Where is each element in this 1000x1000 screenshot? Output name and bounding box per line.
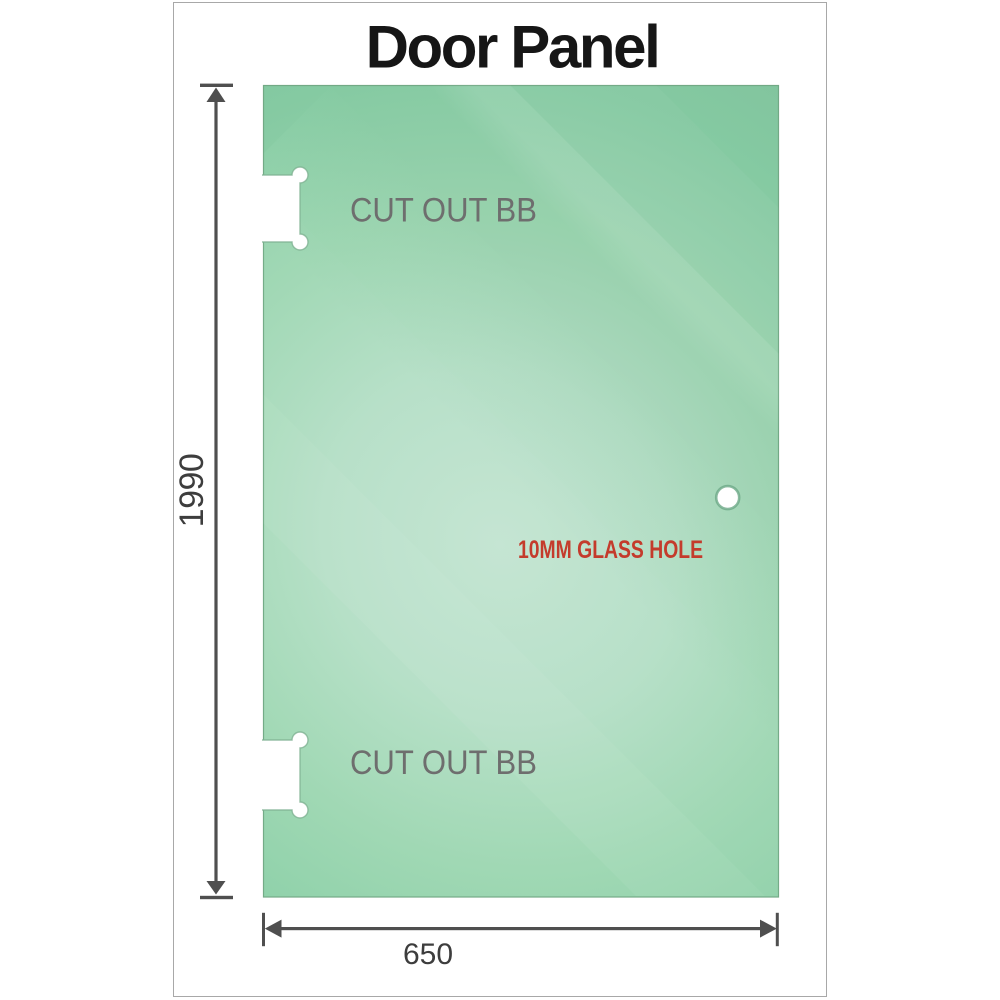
svg-text:10MM GLASS HOLE: 10MM GLASS HOLE — [518, 536, 703, 564]
svg-text:CUT OUT BB: CUT OUT BB — [350, 192, 537, 230]
svg-text:1990: 1990 — [173, 454, 211, 528]
svg-text:650: 650 — [403, 938, 453, 971]
svg-text:CUT OUT BB: CUT OUT BB — [350, 744, 537, 782]
svg-text:Door Panel: Door Panel — [366, 14, 659, 81]
